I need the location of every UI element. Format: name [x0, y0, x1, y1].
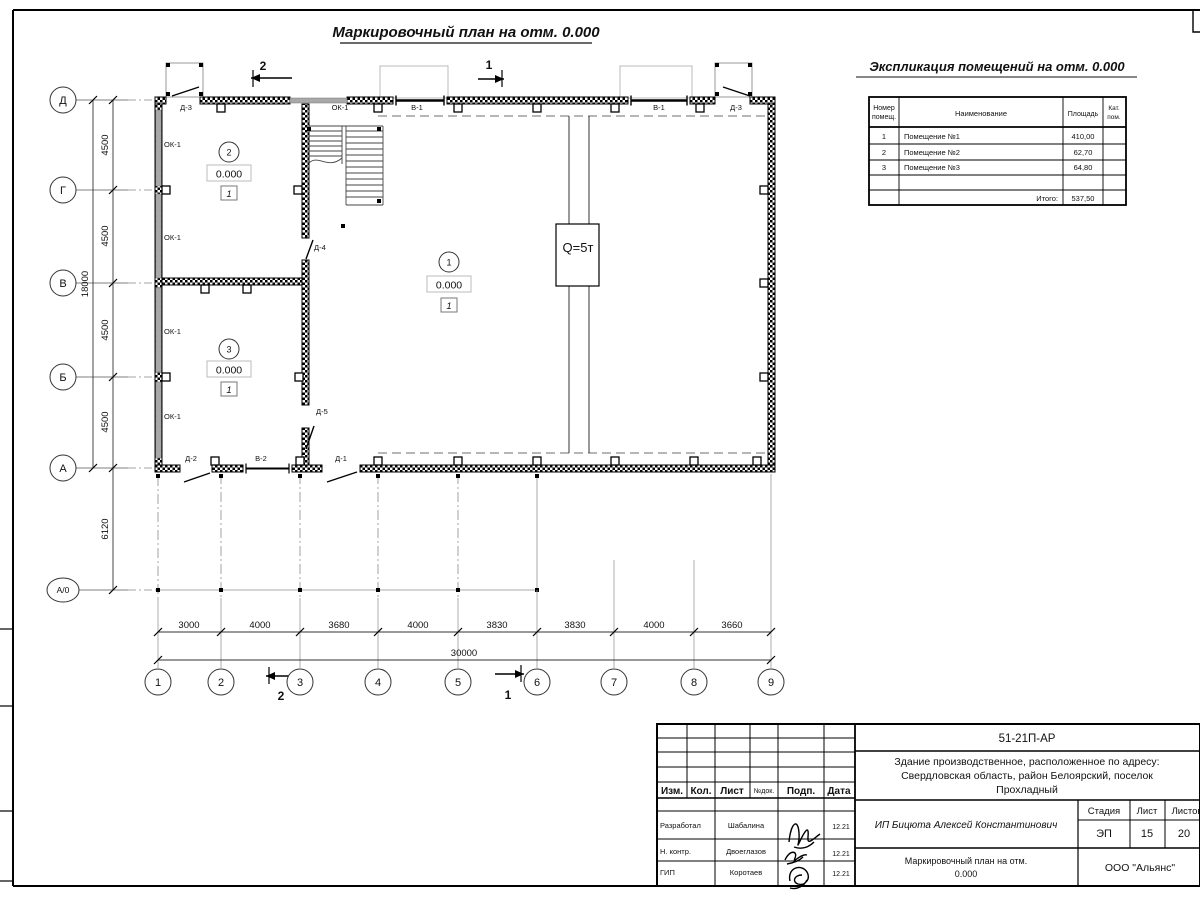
axis-label: 8 — [691, 677, 697, 689]
window-label: ОК-1 — [164, 140, 181, 149]
crane-beam: Q=5т — [556, 116, 599, 453]
entry-porches — [166, 63, 752, 98]
dim-value: 4500 — [100, 225, 111, 246]
sign-name: Коротаев — [730, 868, 762, 877]
left-margin-marks — [0, 629, 13, 881]
dim-value: 3830 — [564, 620, 585, 631]
stair-treads-left — [309, 131, 342, 156]
stair-break-line — [309, 158, 342, 163]
total-label: Итого: — [1036, 194, 1058, 203]
room-elevation: 0.000 — [216, 169, 242, 181]
axis-label: 7 — [611, 677, 617, 689]
plan-title-group: Маркировочный план на отм. 0.000 — [332, 24, 600, 43]
axis-label: А — [59, 463, 67, 475]
sign-row: Разработал Шабалина 12.21 — [660, 821, 850, 831]
signature-scribble — [789, 824, 820, 848]
door-label: Д-3 — [730, 103, 742, 112]
plan-title: Маркировочный план на отм. 0.000 — [332, 24, 600, 41]
organization-name: ООО "Альянс" — [1105, 862, 1175, 874]
total-value: 537,50 — [1072, 194, 1095, 203]
section-mark-2-top: 2 — [251, 59, 292, 87]
sign-row: ГИП Коротаев 12.21 — [660, 868, 850, 878]
crane-symbol — [556, 224, 599, 286]
sign-date: 12.21 — [832, 851, 850, 858]
col-header-kol: Кол. — [690, 786, 711, 797]
dim-value: 3000 — [178, 620, 199, 631]
sign-role: ГИП — [660, 868, 675, 877]
room-num-cell: 3 — [882, 163, 886, 172]
schedule-col-header: Номер — [873, 105, 895, 112]
schedule-col-header: Кат. — [1108, 105, 1120, 112]
window-label: ОК-1 — [164, 327, 181, 336]
room-elevation: 0.000 — [216, 365, 242, 377]
room-markers: 1 0.000 1 2 0.000 1 3 0.000 1 — [207, 142, 471, 396]
room-schedule: Экспликация помещений на отм. 0.000 Номе… — [856, 59, 1137, 205]
sign-date: 12.21 — [832, 824, 850, 831]
signatures — [785, 824, 820, 889]
window-label: ОК-1 — [164, 233, 181, 242]
stair-posts — [307, 127, 381, 228]
axes-left: Д Г В Б А А/0 4500 4500 4500 4500 18000 … — [47, 87, 156, 602]
sign-role: Н. контр. — [660, 847, 691, 856]
canopy-area — [156, 474, 539, 598]
room-area-cell: 64,80 — [1074, 163, 1093, 172]
schedule-col-header: Площадь — [1068, 111, 1099, 118]
door-label: Д-5 — [316, 407, 328, 416]
room-num-cell: 1 — [882, 132, 886, 141]
section-number: 1 — [486, 58, 493, 72]
col-header-ndok: №док. — [754, 788, 775, 795]
room-area-cell: 62,70 — [1074, 148, 1093, 157]
schedule-col-header: Наименование — [955, 109, 1007, 118]
axis-label: 6 — [534, 677, 540, 689]
schedule-col-header: пом. — [1107, 114, 1121, 121]
dim-total: 30000 — [451, 648, 477, 659]
room-marker-1: 1 0.000 1 — [427, 252, 471, 312]
sheets-label: Листов — [1172, 806, 1200, 817]
sign-row: Н. контр. Двоеглазов 12.21 — [660, 847, 850, 858]
axis-label: В — [59, 278, 66, 290]
signature-scribble — [785, 852, 807, 864]
floor-type-mark: 1 — [226, 385, 231, 396]
room-name-cell: Помещение №3 — [904, 163, 960, 172]
floor-type-mark: 1 — [446, 301, 451, 312]
col-header-podp: Подп. — [787, 786, 816, 797]
sign-name: Шабалина — [728, 821, 765, 830]
dim-value: 4000 — [249, 620, 270, 631]
drawing-sheet: Маркировочный план на отм. 0.000 — [0, 0, 1200, 900]
axis-label: 4 — [375, 677, 381, 689]
room-area-cell: 410,00 — [1072, 132, 1095, 141]
project-address-line: Свердловская область, район Белоярский, … — [901, 770, 1153, 782]
porch-posts — [166, 63, 752, 96]
door-label: Д-3 — [180, 103, 192, 112]
room-number: 3 — [226, 345, 231, 355]
stage-value: ЭП — [1096, 828, 1112, 840]
axes-bottom: 3000 4000 3680 4000 3830 3830 4000 3660 … — [145, 474, 784, 695]
door-label: Д-2 — [185, 454, 197, 463]
axis-label: 1 — [155, 677, 161, 689]
room-elevation: 0.000 — [436, 280, 462, 292]
door-label: Д-1 — [335, 454, 347, 463]
gate-label: В-1 — [411, 103, 423, 112]
canopy-right — [620, 66, 692, 98]
col-header-izm: Изм. — [661, 786, 683, 797]
schedule-title: Экспликация помещений на отм. 0.000 — [869, 59, 1125, 74]
drawing-name-line: Маркировочный план на отм. — [905, 856, 1027, 866]
door-label: Д-4 — [314, 243, 326, 252]
room-number: 2 — [226, 148, 231, 158]
customer-name: ИП Бицюта Алексей Константинович — [875, 820, 1058, 831]
doc-number: 51-21П-АР — [999, 733, 1056, 745]
floor-plan: Q=5т Д-3 ОК-1 В-1 В-1 Д- — [47, 58, 784, 703]
corner-stamp-box — [1193, 10, 1200, 32]
room-name-cell: Помещение №1 — [904, 132, 960, 141]
project-address-line: Прохладный — [996, 784, 1058, 796]
sign-date: 12.21 — [832, 871, 850, 878]
axis-label: Г — [60, 185, 66, 197]
dim-value: 4500 — [100, 319, 111, 340]
title-block: Изм. Кол. Лист №док. Подп. Дата Разработ… — [657, 724, 1200, 889]
axis-label: Д — [59, 95, 67, 107]
room-number: 1 — [446, 258, 451, 268]
canopy-columns — [156, 474, 539, 592]
axis-label: А/0 — [57, 585, 70, 595]
section-number: 2 — [260, 59, 267, 73]
dim-value: 3830 — [486, 620, 507, 631]
room-marker-3: 3 0.000 1 — [207, 339, 251, 396]
schedule-total-row: Итого: 537,50 — [1036, 194, 1094, 203]
room-num-cell: 2 — [882, 148, 886, 157]
col-header-data: Дата — [827, 786, 851, 797]
axis-label: 5 — [455, 677, 461, 689]
dim-value: 4000 — [407, 620, 428, 631]
dim-value: 6120 — [100, 518, 111, 539]
drawing-name-line: 0.000 — [955, 869, 978, 879]
project-address-line: Здание производственное, расположенное п… — [894, 756, 1159, 768]
porch-right — [715, 63, 752, 97]
section-number: 2 — [278, 689, 285, 703]
axis-label: 2 — [218, 677, 224, 689]
sign-role: Разработал — [660, 821, 701, 830]
schedule-row: 2 Помещение №2 62,70 — [882, 148, 1092, 157]
window-label: ОК-1 — [164, 412, 181, 421]
axis-label: 9 — [768, 677, 774, 689]
sheet-value: 15 — [1141, 828, 1153, 840]
section-mark-1-bottom: 1 — [495, 665, 524, 702]
canopy-left — [380, 66, 448, 98]
section-number: 1 — [505, 688, 512, 702]
schedule-row: 3 Помещение №3 64,80 — [882, 163, 1092, 172]
gate-label: В-2 — [255, 454, 267, 463]
section-marks: 2 1 2 1 — [251, 58, 524, 703]
window-label: ОК-1 — [332, 103, 349, 112]
col-header-list: Лист — [720, 786, 744, 797]
dim-value: 4500 — [100, 411, 111, 432]
dim-value: 4000 — [643, 620, 664, 631]
dim-value: 3680 — [328, 620, 349, 631]
dim-total: 18000 — [80, 271, 91, 297]
axis-label: Б — [59, 372, 66, 384]
staircase — [307, 126, 383, 228]
sheet-label: Лист — [1137, 806, 1158, 817]
room-marker-2: 2 0.000 1 — [207, 142, 251, 200]
dim-value: 4500 — [100, 134, 111, 155]
stage-label: Стадия — [1088, 806, 1120, 817]
stair-treads-right — [346, 131, 383, 197]
axis-label: 3 — [297, 677, 303, 689]
schedule-col-header: помещ. — [872, 114, 896, 121]
sheets-value: 20 — [1178, 828, 1190, 840]
gate-label: В-1 — [653, 103, 665, 112]
sign-name: Двоеглазов — [726, 847, 766, 856]
crane-capacity-label: Q=5т — [563, 240, 594, 255]
section-mark-1-top: 1 — [478, 58, 504, 87]
floor-type-mark: 1 — [226, 189, 231, 200]
dim-value: 3660 — [721, 620, 742, 631]
room-name-cell: Помещение №2 — [904, 148, 960, 157]
